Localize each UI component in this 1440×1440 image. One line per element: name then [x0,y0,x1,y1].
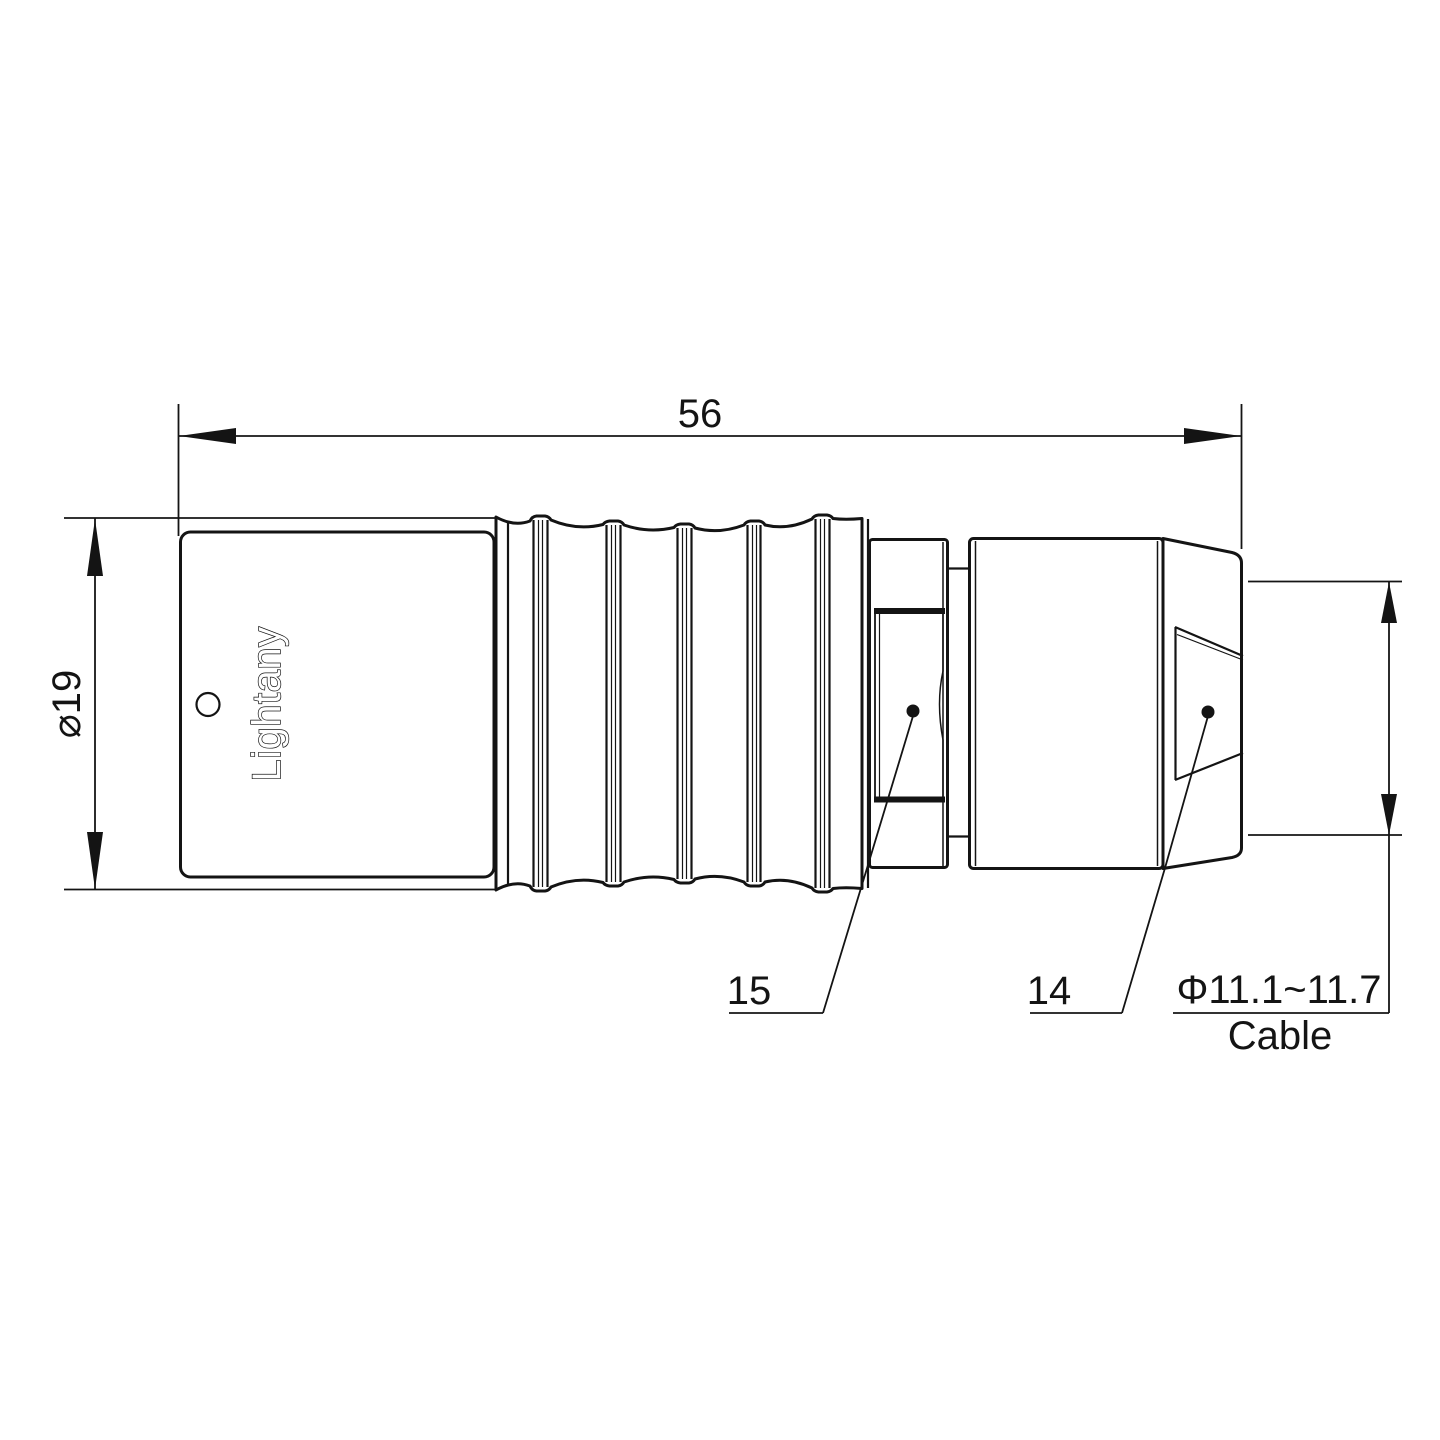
connector-body: Lightany [181,532,495,877]
arrowhead-up-icon [1381,582,1397,623]
cable-entry-cone [1163,539,1243,869]
arrowhead-up-icon [87,519,103,576]
dimension-length-value: 56 [678,392,723,436]
dimension-overall-length: 56 [179,392,1242,549]
dimension-diameter-value: ⌀19 [45,670,89,739]
arrowhead-right-icon [1184,428,1241,444]
brand-engraving: Lightany [245,626,289,781]
part-label-sleeve: 15 [727,969,772,1013]
cable-label: Cable [1228,1014,1333,1058]
nut-outline [970,539,1164,869]
drawing-canvas: Lightany Lightany [0,0,1440,1440]
connector-views: Lightany [181,515,1244,892]
groove [948,569,971,837]
leader-dot-icon [907,705,920,718]
connector-technical-drawing: Lightany Lightany [0,0,1440,1440]
arrowhead-down-icon [1381,794,1397,835]
bell-outline [496,515,862,892]
nut-part-14 [970,539,1164,869]
arrowhead-down-icon [87,832,103,889]
part-label-nut: 14 [1027,969,1072,1013]
arrowhead-left-icon [179,428,236,444]
cable-diameter-value: Φ11.1~11.7 [1176,968,1381,1012]
bend-relief-bell [496,515,868,892]
body-outline [181,532,495,877]
